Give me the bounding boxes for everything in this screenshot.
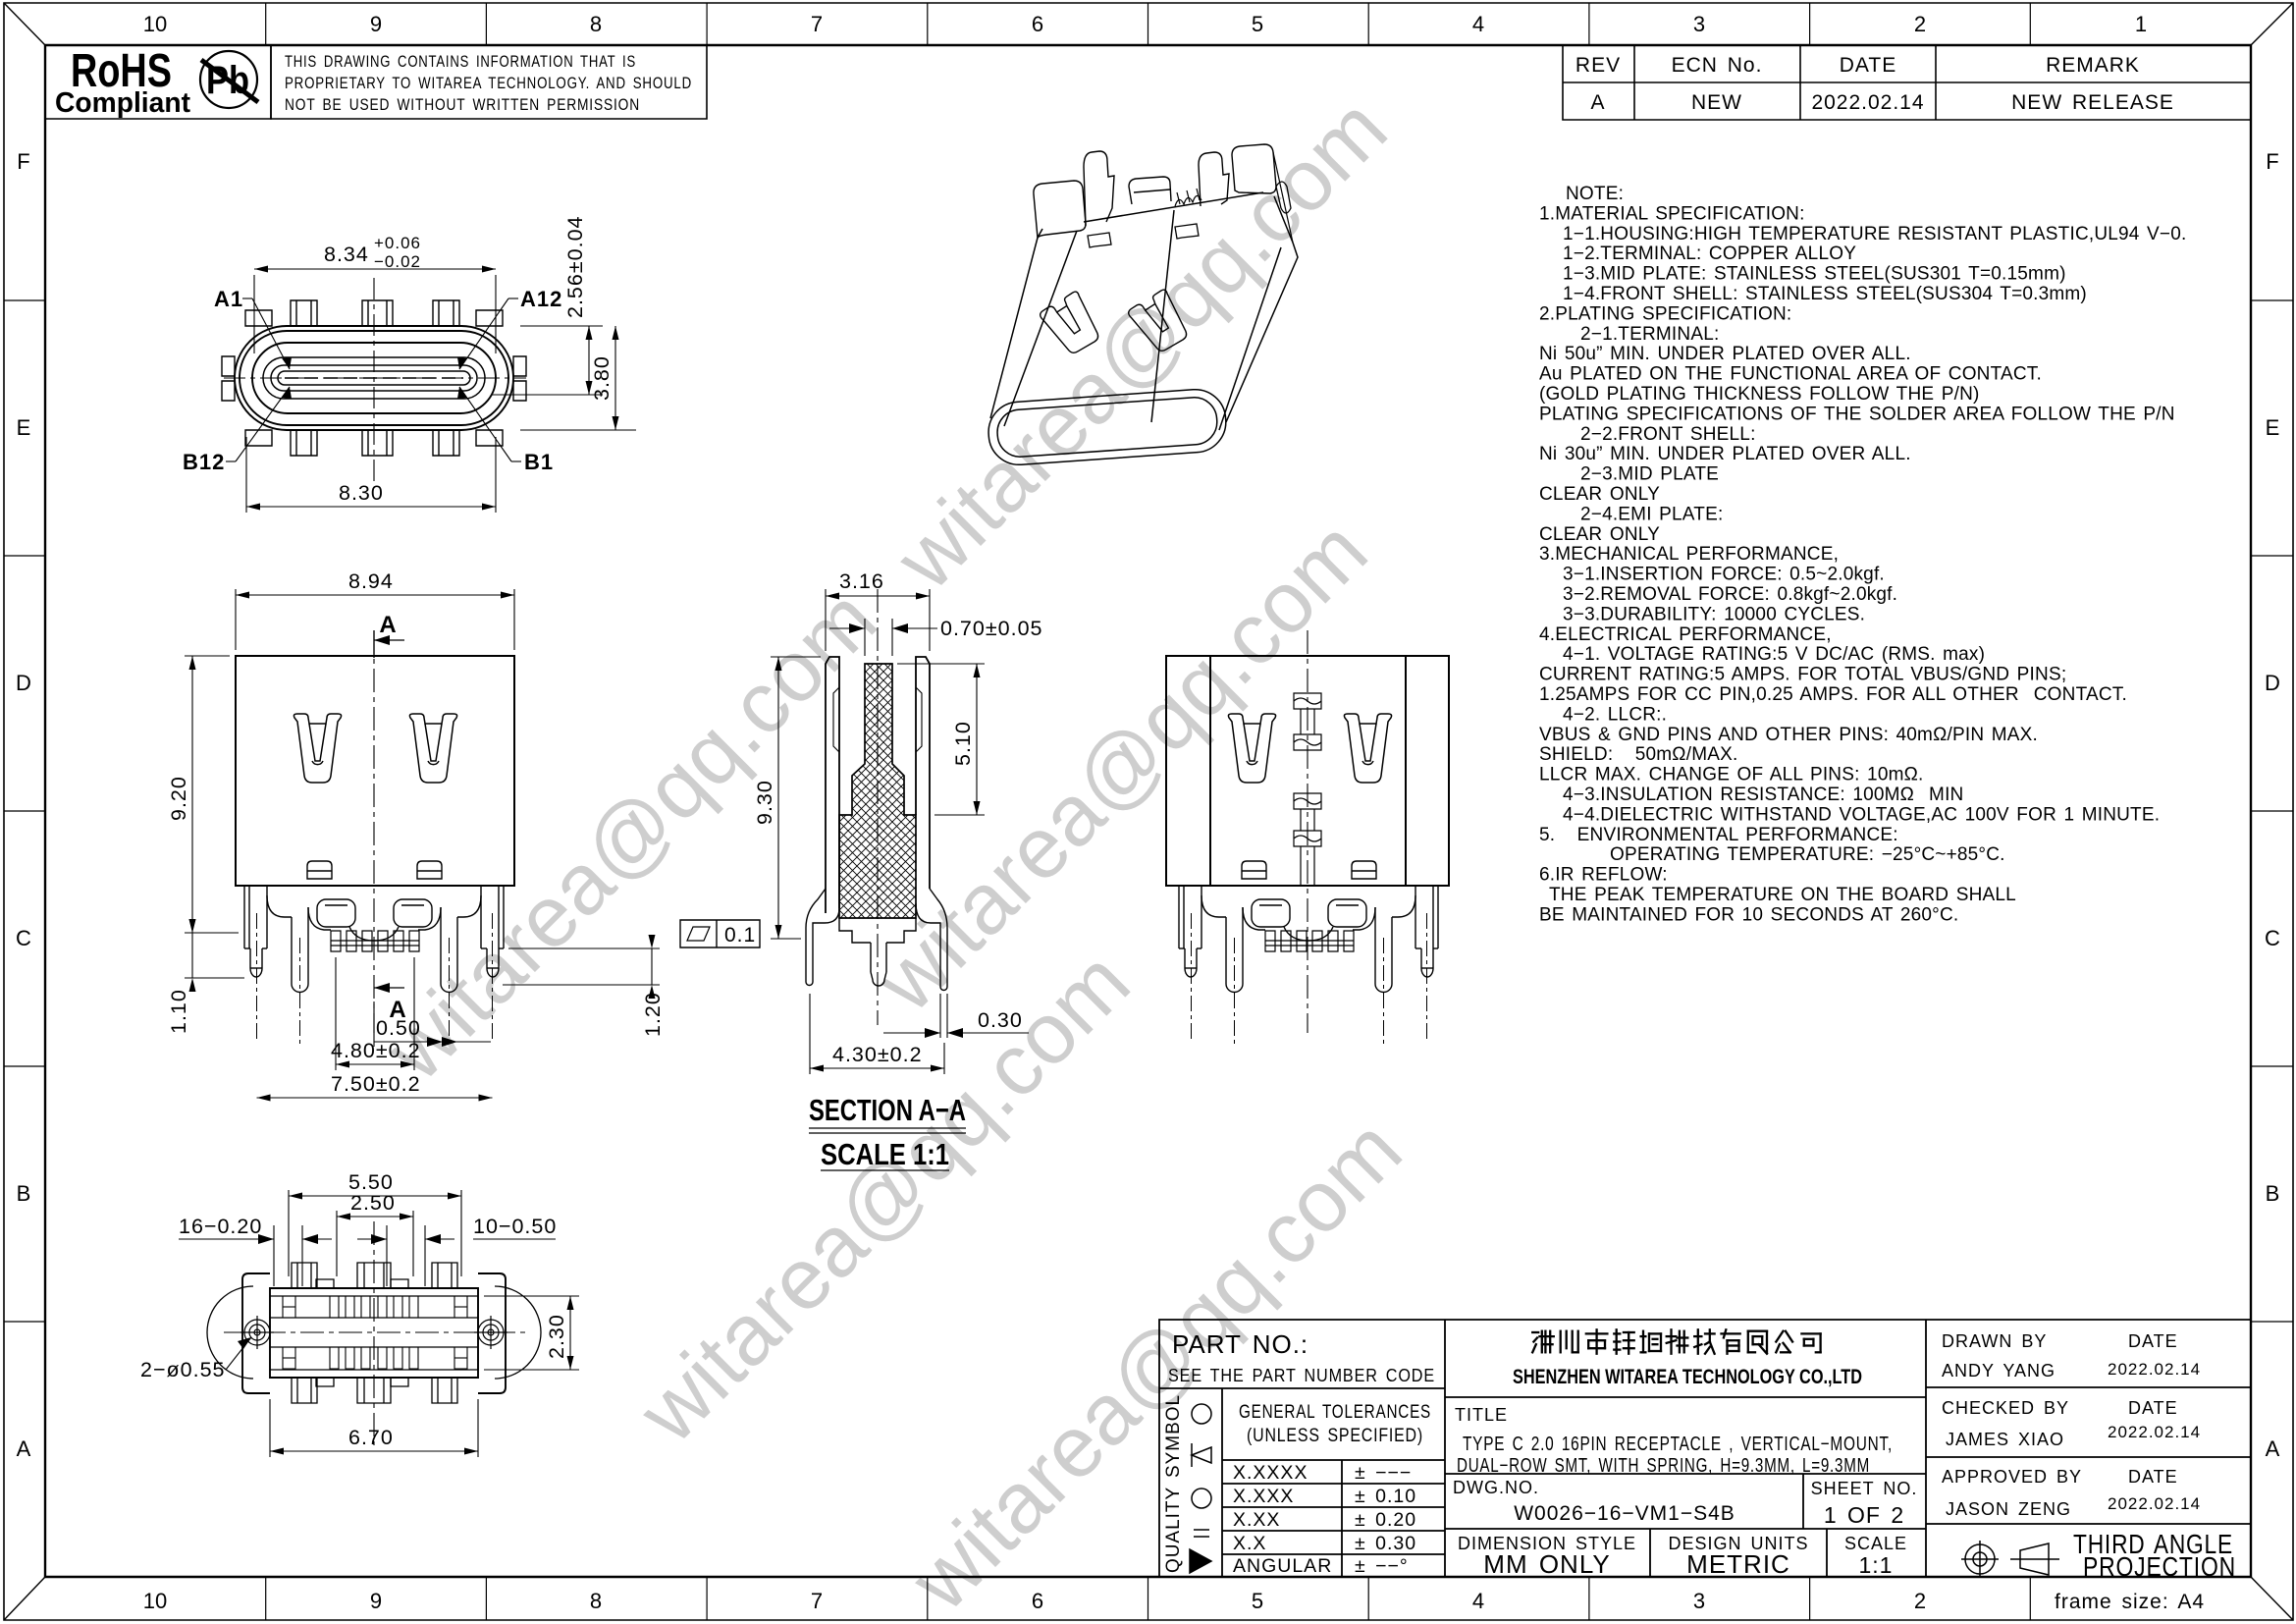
svg-text:3.80: 3.80 — [590, 355, 614, 401]
svg-text:6: 6 — [1032, 1589, 1043, 1613]
svg-text:NOTE:: NOTE: — [1566, 184, 1624, 204]
svg-text:1:1: 1:1 — [1859, 1552, 1894, 1578]
svg-text:ECN No.: ECN No. — [1672, 54, 1763, 77]
svg-text:2022.02.14: 2022.02.14 — [2108, 1494, 2201, 1513]
svg-text:± 0.10: ± 0.10 — [1355, 1486, 1416, 1507]
svg-text:B: B — [17, 1181, 31, 1206]
svg-text:1.10: 1.10 — [167, 989, 190, 1034]
svg-text:2.PLATING SPECIFICATION:: 2.PLATING SPECIFICATION: — [1539, 303, 1791, 324]
svg-text:A1: A1 — [214, 287, 243, 311]
svg-text:(UNLESS SPECIFIED): (UNLESS SPECIFIED) — [1247, 1425, 1423, 1446]
svg-text:9: 9 — [370, 12, 382, 36]
svg-text:D: D — [16, 671, 31, 695]
svg-text:1−1.HOUSING:HIGH TEMPERATURE R: 1−1.HOUSING:HIGH TEMPERATURE RESISTANT P… — [1563, 224, 2186, 244]
svg-text:8.34: 8.34 — [324, 243, 369, 266]
svg-text:W0026−16−VM1−S4B: W0026−16−VM1−S4B — [1514, 1502, 1735, 1525]
svg-text:SCALE: SCALE — [1844, 1534, 1907, 1553]
svg-text:D: D — [2265, 671, 2280, 695]
svg-text:6: 6 — [1032, 12, 1043, 36]
svg-text:PROPRIETARY TO WITAREA TECHNOL: PROPRIETARY TO WITAREA TECHNOLOGY. AND S… — [285, 75, 692, 92]
svg-text:DRAWN BY: DRAWN BY — [1942, 1331, 2047, 1351]
svg-text:2: 2 — [1914, 12, 1926, 36]
svg-text:NEW: NEW — [1691, 91, 1742, 114]
svg-text:A: A — [1590, 91, 1605, 114]
svg-text:ANDY YANG: ANDY YANG — [1942, 1361, 2056, 1380]
svg-text:METRIC: METRIC — [1686, 1549, 1790, 1579]
svg-text:QUALITY SYMBOL: QUALITY SYMBOL — [1163, 1394, 1184, 1573]
svg-text:2022.02.14: 2022.02.14 — [2108, 1423, 2201, 1441]
svg-text:SHENZHEN WITAREA TECHNOLOGY CO: SHENZHEN WITAREA TECHNOLOGY CO.,LTD — [1513, 1365, 1862, 1388]
svg-text:4: 4 — [1472, 1589, 1484, 1613]
svg-text:F: F — [17, 149, 29, 174]
svg-text:5. ENVIRONMENTAL PERFORMANCE: 5. ENVIRONMENTAL PERFORMANCE: — [1539, 825, 1898, 845]
svg-text:1−4.FRONT SHELL: STAINLESS STE: 1−4.FRONT SHELL: STAINLESS STEEL(SUS304 … — [1563, 284, 2087, 304]
svg-text:A12: A12 — [520, 287, 562, 311]
svg-text:8.94: 8.94 — [348, 569, 394, 593]
svg-text:5: 5 — [1252, 12, 1263, 36]
svg-text:B: B — [2266, 1181, 2280, 1206]
svg-text:2022.02.14: 2022.02.14 — [2108, 1360, 2201, 1379]
svg-text:1.MATERIAL SPECIFICATION:: 1.MATERIAL SPECIFICATION: — [1539, 203, 1805, 224]
svg-text:3: 3 — [1693, 12, 1705, 36]
svg-text:0.1: 0.1 — [724, 924, 756, 947]
svg-text:2022.02.14: 2022.02.14 — [1811, 91, 1924, 114]
svg-text:2−ø0.55: 2−ø0.55 — [140, 1358, 226, 1381]
svg-text:2.56±0.04: 2.56±0.04 — [563, 216, 587, 319]
svg-text:A: A — [379, 612, 396, 638]
svg-text:4.30±0.2: 4.30±0.2 — [832, 1043, 923, 1066]
svg-text:3.16: 3.16 — [839, 569, 884, 593]
svg-text:REMARK: REMARK — [2046, 54, 2140, 77]
svg-text:9: 9 — [370, 1589, 382, 1613]
svg-text:0.70±0.05: 0.70±0.05 — [940, 617, 1043, 640]
svg-text:X.XX: X.XX — [1233, 1509, 1280, 1531]
svg-text:DATE: DATE — [2128, 1398, 2178, 1418]
svg-text:1: 1 — [2135, 12, 2147, 36]
svg-text:10: 10 — [143, 1589, 167, 1613]
svg-text:6.IR REFLOW:: 6.IR REFLOW: — [1539, 865, 1668, 886]
svg-text:4−1. VOLTAGE RATING:5 V DC/AC: 4−1. VOLTAGE RATING:5 V DC/AC (RMS. max) — [1563, 644, 1985, 665]
svg-text:LLCR MAX. CHANGE OF ALL PINS:: LLCR MAX. CHANGE OF ALL PINS: 10mΩ. — [1539, 765, 1924, 785]
svg-text:DATE: DATE — [2128, 1467, 2178, 1487]
svg-text:3.MECHANICAL PERFORMANCE,: 3.MECHANICAL PERFORMANCE, — [1539, 544, 1839, 565]
svg-text:C: C — [16, 926, 31, 950]
svg-text:DWG.NO.: DWG.NO. — [1453, 1478, 1539, 1497]
svg-text:frame size: A4: frame size: A4 — [2055, 1591, 2205, 1613]
svg-text:F: F — [2266, 149, 2278, 174]
svg-text:7: 7 — [811, 12, 823, 36]
svg-text:A: A — [2266, 1436, 2280, 1461]
svg-text:B1: B1 — [524, 450, 554, 474]
svg-text:TYPE C 2.0 16PIN RECEPTACLE ,: TYPE C 2.0 16PIN RECEPTACLE , VERTICAL−M… — [1463, 1434, 1893, 1455]
svg-text:+0.06: +0.06 — [374, 234, 421, 252]
svg-text:2.50: 2.50 — [350, 1191, 396, 1215]
svg-text:A: A — [17, 1436, 31, 1461]
svg-text:THIS DRAWING CONTAINS INFORMAT: THIS DRAWING CONTAINS INFORMATION THAT I… — [285, 53, 636, 71]
svg-text:8.30: 8.30 — [339, 481, 384, 505]
svg-text:X.XXXX: X.XXXX — [1233, 1462, 1308, 1484]
svg-text:± −−°: ± −−° — [1355, 1555, 1409, 1577]
svg-text:7: 7 — [811, 1589, 823, 1613]
svg-text:JAMES XIAO: JAMES XIAO — [1946, 1430, 2064, 1449]
svg-text:−0.02: −0.02 — [374, 252, 421, 271]
svg-text:NEW RELEASE: NEW RELEASE — [2011, 91, 2174, 114]
svg-text:Au PLATED ON THE FUNCTIONAL AR: Au PLATED ON THE FUNCTIONAL AREA OF CONT… — [1539, 364, 2042, 385]
svg-text:4.80±0.2: 4.80±0.2 — [331, 1039, 421, 1062]
svg-text:THE PEAK TEMPERATURE ON THE BO: THE PEAK TEMPERATURE ON THE BOARD SHALL — [1549, 885, 2016, 905]
svg-text:10−0.50: 10−0.50 — [473, 1215, 557, 1238]
svg-text:ANGULAR: ANGULAR — [1233, 1555, 1332, 1577]
svg-text:E: E — [2266, 415, 2280, 440]
svg-text:16−0.20: 16−0.20 — [179, 1215, 262, 1238]
svg-text:X.XXX: X.XXX — [1233, 1486, 1294, 1507]
svg-text:2−1.TERMINAL:: 2−1.TERMINAL: — [1580, 324, 1719, 345]
svg-text:2−2.FRONT SHELL:: 2−2.FRONT SHELL: — [1580, 424, 1756, 445]
svg-text:3−2.REMOVAL FORCE: 0.8kgf~2.0k: 3−2.REMOVAL FORCE: 0.8kgf~2.0kgf. — [1563, 584, 1897, 605]
svg-text:0.30: 0.30 — [978, 1008, 1023, 1032]
svg-text:C: C — [2265, 926, 2280, 950]
svg-text:Ni 30u” MIN. UNDER PLATED OVER: Ni 30u” MIN. UNDER PLATED OVER ALL. — [1539, 444, 1911, 464]
svg-text:8: 8 — [590, 1589, 602, 1613]
svg-text:DATE: DATE — [2128, 1331, 2178, 1351]
svg-text:1−3.MID PLATE: STAINLESS STEEL: 1−3.MID PLATE: STAINLESS STEEL(SUS301 T=… — [1563, 264, 2066, 285]
svg-text:1 OF 2: 1 OF 2 — [1824, 1502, 1904, 1528]
svg-text:6.70: 6.70 — [348, 1426, 394, 1449]
svg-text:7.50±0.2: 7.50±0.2 — [331, 1072, 421, 1096]
svg-text:X.X: X.X — [1233, 1533, 1266, 1554]
svg-text:± 0.20: ± 0.20 — [1355, 1509, 1416, 1531]
svg-text:SCALE 1:1: SCALE 1:1 — [821, 1137, 949, 1171]
svg-text:4−2. LLCR:.: 4−2. LLCR:. — [1563, 704, 1667, 725]
svg-text:± 0.30: ± 0.30 — [1355, 1533, 1416, 1554]
svg-text:REV: REV — [1575, 54, 1621, 77]
svg-text:E: E — [17, 415, 31, 440]
svg-text:2.30: 2.30 — [545, 1314, 568, 1359]
svg-text:2: 2 — [1914, 1589, 1926, 1613]
svg-text:SEE THE PART NUMBER CODE: SEE THE PART NUMBER CODE — [1168, 1365, 1435, 1385]
svg-text:1.25AMPS FOR CC PIN,0.25 AMPS.: 1.25AMPS FOR CC PIN,0.25 AMPS. FOR ALL O… — [1539, 684, 2127, 705]
svg-text:JASON ZENG: JASON ZENG — [1946, 1499, 2071, 1519]
svg-text:SHIELD: 50mΩ/MAX.: SHIELD: 50mΩ/MAX. — [1539, 744, 1737, 765]
svg-text:10: 10 — [143, 12, 167, 36]
svg-text:4: 4 — [1472, 12, 1484, 36]
svg-text:NOT BE USED WITHOUT WRITTEN PE: NOT BE USED WITHOUT WRITTEN PERMISSION — [285, 96, 640, 114]
svg-text:MM ONLY: MM ONLY — [1483, 1549, 1610, 1579]
svg-text:4−3.INSULATION RESISTANCE: 100: 4−3.INSULATION RESISTANCE: 100MΩ MIN — [1563, 785, 1963, 805]
svg-text:5.10: 5.10 — [951, 721, 975, 766]
svg-text:3: 3 — [1693, 1589, 1705, 1613]
svg-text:(GOLD PLATING THICKNESS FOLLOW: (GOLD PLATING THICKNESS FOLLOW THE P/N) — [1539, 384, 1980, 405]
svg-text:3−1.INSERTION FORCE: 0.5~2.0kg: 3−1.INSERTION FORCE: 0.5~2.0kgf. — [1563, 565, 1885, 585]
svg-text:SECTION A−A: SECTION A−A — [809, 1093, 966, 1127]
svg-text:1.20: 1.20 — [641, 992, 665, 1037]
svg-text:CHECKED BY: CHECKED BY — [1942, 1398, 2069, 1418]
svg-text:Ni 50u” MIN. UNDER PLATED OVER: Ni 50u” MIN. UNDER PLATED OVER ALL. — [1539, 344, 1911, 364]
svg-text:CLEAR ONLY: CLEAR ONLY — [1539, 484, 1660, 505]
svg-text:GENERAL TOLERANCES: GENERAL TOLERANCES — [1239, 1401, 1431, 1423]
svg-text:VBUS & GND PINS AND OTHER PINS: VBUS & GND PINS AND OTHER PINS: 40mΩ/PIN… — [1539, 725, 2038, 745]
svg-text:4−4.DIELECTRIC WITHSTAND VOLTA: 4−4.DIELECTRIC WITHSTAND VOLTAGE,AC 100V… — [1563, 804, 2160, 825]
svg-text:8: 8 — [590, 12, 602, 36]
svg-text:1−2.TERMINAL: COPPER ALLOY: 1−2.TERMINAL: COPPER ALLOY — [1563, 244, 1856, 264]
svg-text:2−3.MID PLATE: 2−3.MID PLATE — [1580, 464, 1719, 485]
svg-text:PART NO.:: PART NO.: — [1172, 1329, 1308, 1359]
svg-text:3−3.DURABILITY: 10000 CYCLES.: 3−3.DURABILITY: 10000 CYCLES. — [1563, 604, 1865, 624]
svg-text:CURRENT RATING:5 AMPS. FOR TOT: CURRENT RATING:5 AMPS. FOR TOTAL VBUS/GN… — [1539, 665, 2066, 685]
svg-text:OPERATING TEMPERATURE: −25°C~+: OPERATING TEMPERATURE: −25°C~+85°C. — [1610, 844, 2005, 865]
svg-text:± −−−: ± −−− — [1355, 1462, 1412, 1484]
svg-text:CLEAR ONLY: CLEAR ONLY — [1539, 524, 1660, 545]
svg-text:BE MAINTAINED FOR 10 SECONDS A: BE MAINTAINED FOR 10 SECONDS AT 260°C. — [1539, 904, 1958, 925]
svg-text:TITLE: TITLE — [1455, 1405, 1508, 1425]
svg-text:PLATING SPECIFICATIONS OF THE: PLATING SPECIFICATIONS OF THE SOLDER ARE… — [1539, 404, 2175, 424]
svg-text:9.30: 9.30 — [753, 780, 776, 825]
svg-text:B12: B12 — [183, 450, 225, 474]
svg-text:9.20: 9.20 — [167, 776, 190, 821]
svg-text:APPROVED BY: APPROVED BY — [1942, 1467, 2082, 1487]
svg-text:SHEET NO.: SHEET NO. — [1811, 1479, 1918, 1498]
svg-text:5: 5 — [1252, 1589, 1263, 1613]
svg-text:PROJECTION: PROJECTION — [2083, 1551, 2236, 1582]
svg-text:2−4.EMI PLATE:: 2−4.EMI PLATE: — [1580, 504, 1723, 524]
svg-text:DUAL−ROW SMT, WITH SPRING, H=9: DUAL−ROW SMT, WITH SPRING, H=9.3MM, L=9.… — [1457, 1455, 1870, 1477]
svg-text:4.ELECTRICAL PERFORMANCE,: 4.ELECTRICAL PERFORMANCE, — [1539, 624, 1832, 645]
svg-text:DATE: DATE — [1840, 54, 1896, 77]
svg-text:Compliant: Compliant — [55, 87, 190, 119]
